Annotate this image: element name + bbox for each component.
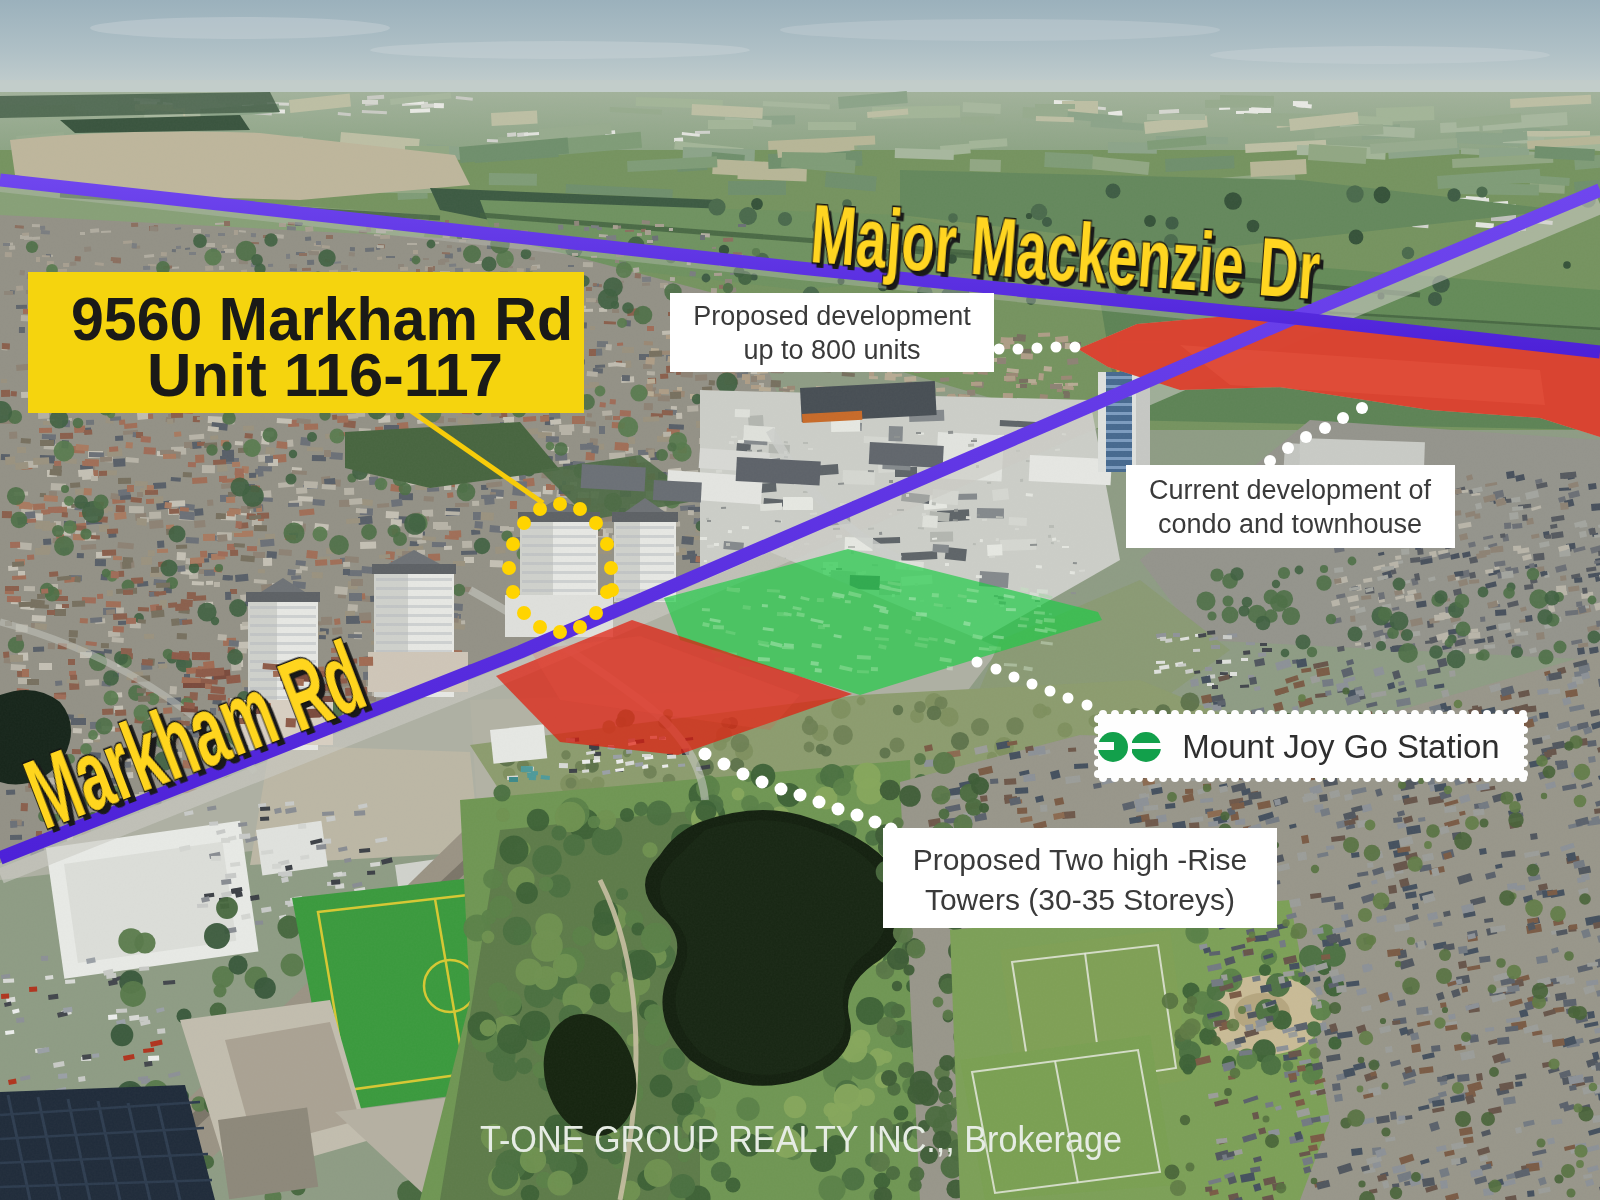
svg-text:Towers (30-35 Storeys): Towers (30-35 Storeys) <box>925 883 1235 916</box>
svg-text:Proposed development: Proposed development <box>693 301 971 331</box>
svg-text:condo and townhouse: condo and townhouse <box>1158 509 1422 539</box>
svg-text:up to 800 units: up to 800 units <box>743 335 920 365</box>
svg-text:Unit 116-117: Unit 116-117 <box>147 340 503 409</box>
svg-text:T-ONE GROUP REALTY INC.,, Brok: T-ONE GROUP REALTY INC.,, Brokerage <box>480 1119 1122 1160</box>
svg-text:Current development of: Current development of <box>1149 475 1432 505</box>
svg-text:Proposed Two high -Rise: Proposed Two high -Rise <box>913 843 1248 876</box>
svg-text:Mount Joy Go Station: Mount Joy Go Station <box>1182 728 1499 765</box>
